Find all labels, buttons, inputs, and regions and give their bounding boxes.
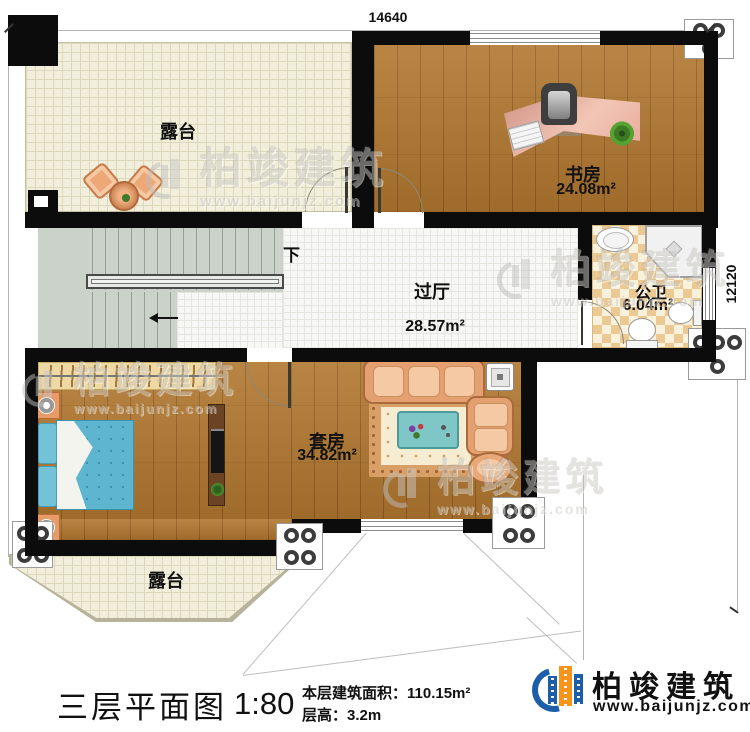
brand-building-icon (548, 676, 557, 704)
sofa-cushion (474, 428, 508, 452)
bath-door-leaf (581, 301, 583, 345)
tv (211, 429, 224, 473)
bed (56, 420, 134, 510)
cabinet-plant (211, 483, 224, 496)
brand-building-icon (574, 674, 583, 704)
plan-title: 三层平面图 (55, 682, 233, 732)
toilet-tank (693, 300, 702, 326)
hall-area: 28.57m² (405, 318, 465, 336)
bed-sheet (57, 421, 99, 509)
stair-treads-lower (92, 292, 177, 348)
wall (25, 540, 312, 556)
wall (578, 348, 716, 362)
wall (424, 212, 578, 228)
suite-door-leaf (288, 362, 291, 408)
wall (25, 348, 38, 556)
wardrobe-rod (39, 375, 217, 377)
floor-plan-page: 14640 12120 (0, 0, 750, 732)
plan-height-line: 层高：3.2m (302, 704, 381, 725)
stairs-arrow-icon (149, 313, 158, 323)
wall-column-notch (34, 196, 48, 207)
stair-handrail-inner (91, 279, 279, 284)
sofa-cushion (477, 459, 503, 477)
suite-area: 34.82m² (297, 447, 357, 465)
plan-scale: 1:80 (234, 686, 294, 722)
patio-table (109, 181, 139, 211)
window-line (361, 530, 463, 531)
ac-unit (276, 523, 323, 570)
pillow (38, 423, 57, 464)
terrace-top-label: 露台 (160, 118, 196, 144)
window-line (470, 42, 600, 43)
window-line (705, 268, 706, 320)
window-line (470, 38, 600, 39)
ac-unit (492, 497, 545, 549)
sofa-chaise (468, 452, 512, 484)
fan-icon (284, 550, 299, 565)
fan-icon (301, 550, 316, 565)
bath-area: 6.04m² (623, 297, 674, 315)
fan-icon (727, 335, 742, 350)
table-decor (446, 433, 450, 437)
brand-building-icon (559, 666, 572, 706)
fan-icon (503, 504, 518, 519)
fan-icon (520, 528, 535, 543)
outline-right-lower (737, 378, 738, 611)
table-decor (441, 425, 446, 430)
table-plant (122, 194, 130, 202)
window-line (361, 526, 463, 527)
window-line (709, 268, 710, 320)
desk-plant (608, 121, 636, 146)
window-line (712, 268, 713, 320)
hall-floor-left (177, 292, 283, 348)
fan-icon (503, 528, 518, 543)
pillow (38, 466, 57, 507)
wall (704, 31, 718, 228)
dimension-right: 12120 (723, 265, 739, 304)
hall-label: 过厅 (414, 278, 450, 304)
brand-site: www.baijunjz.com (593, 698, 750, 716)
fan-icon (520, 504, 535, 519)
stairs-down-label: 下 (283, 241, 300, 266)
wall (25, 348, 247, 362)
sofa-cushion (408, 366, 439, 397)
stair-handrail (86, 274, 284, 289)
wall (578, 225, 592, 300)
desk-chair-seat (548, 91, 570, 119)
tv-cabinet (208, 404, 225, 506)
terrace-door-leaf (345, 167, 348, 213)
sink (596, 227, 634, 252)
side-table-lamp-center (497, 374, 503, 380)
wall (25, 212, 302, 228)
study-door-leaf (378, 168, 381, 213)
dimension-top: 14640 (369, 9, 408, 25)
bidet (628, 318, 656, 342)
sofa-cushion (474, 403, 508, 427)
study-area: 24.08m² (556, 181, 616, 199)
study-window (470, 31, 600, 45)
table-flowers (405, 420, 429, 442)
side-table (486, 363, 514, 391)
sofa-cushion (373, 366, 404, 397)
suite-floor-lower (38, 519, 292, 540)
sofa (363, 359, 485, 404)
outline-mid-lower (583, 475, 584, 660)
fan-icon (301, 528, 316, 543)
outline-left (8, 30, 9, 557)
wall (352, 31, 374, 228)
window-line (361, 521, 463, 522)
bath-window (703, 268, 715, 320)
fan-icon (284, 528, 299, 543)
stairs-direction-line (158, 317, 178, 319)
sofa-cushion (444, 366, 475, 397)
sofa-corner (466, 396, 514, 456)
terrace-bottom-label: 露台 (148, 567, 184, 593)
coffee-table (397, 411, 459, 449)
desk-chair (541, 83, 577, 125)
plan-area-line: 本层建筑面积：110.15m² (302, 682, 470, 703)
roof-line (526, 617, 577, 664)
sink-basin (603, 232, 629, 249)
lamp (38, 397, 55, 414)
chimney-block (8, 15, 58, 66)
wardrobe (38, 362, 216, 390)
window-line (470, 33, 600, 34)
suite-window (361, 519, 463, 533)
brand-logo: 柏竣建筑 www.baijunjz.com (530, 660, 740, 724)
wall (578, 212, 718, 225)
